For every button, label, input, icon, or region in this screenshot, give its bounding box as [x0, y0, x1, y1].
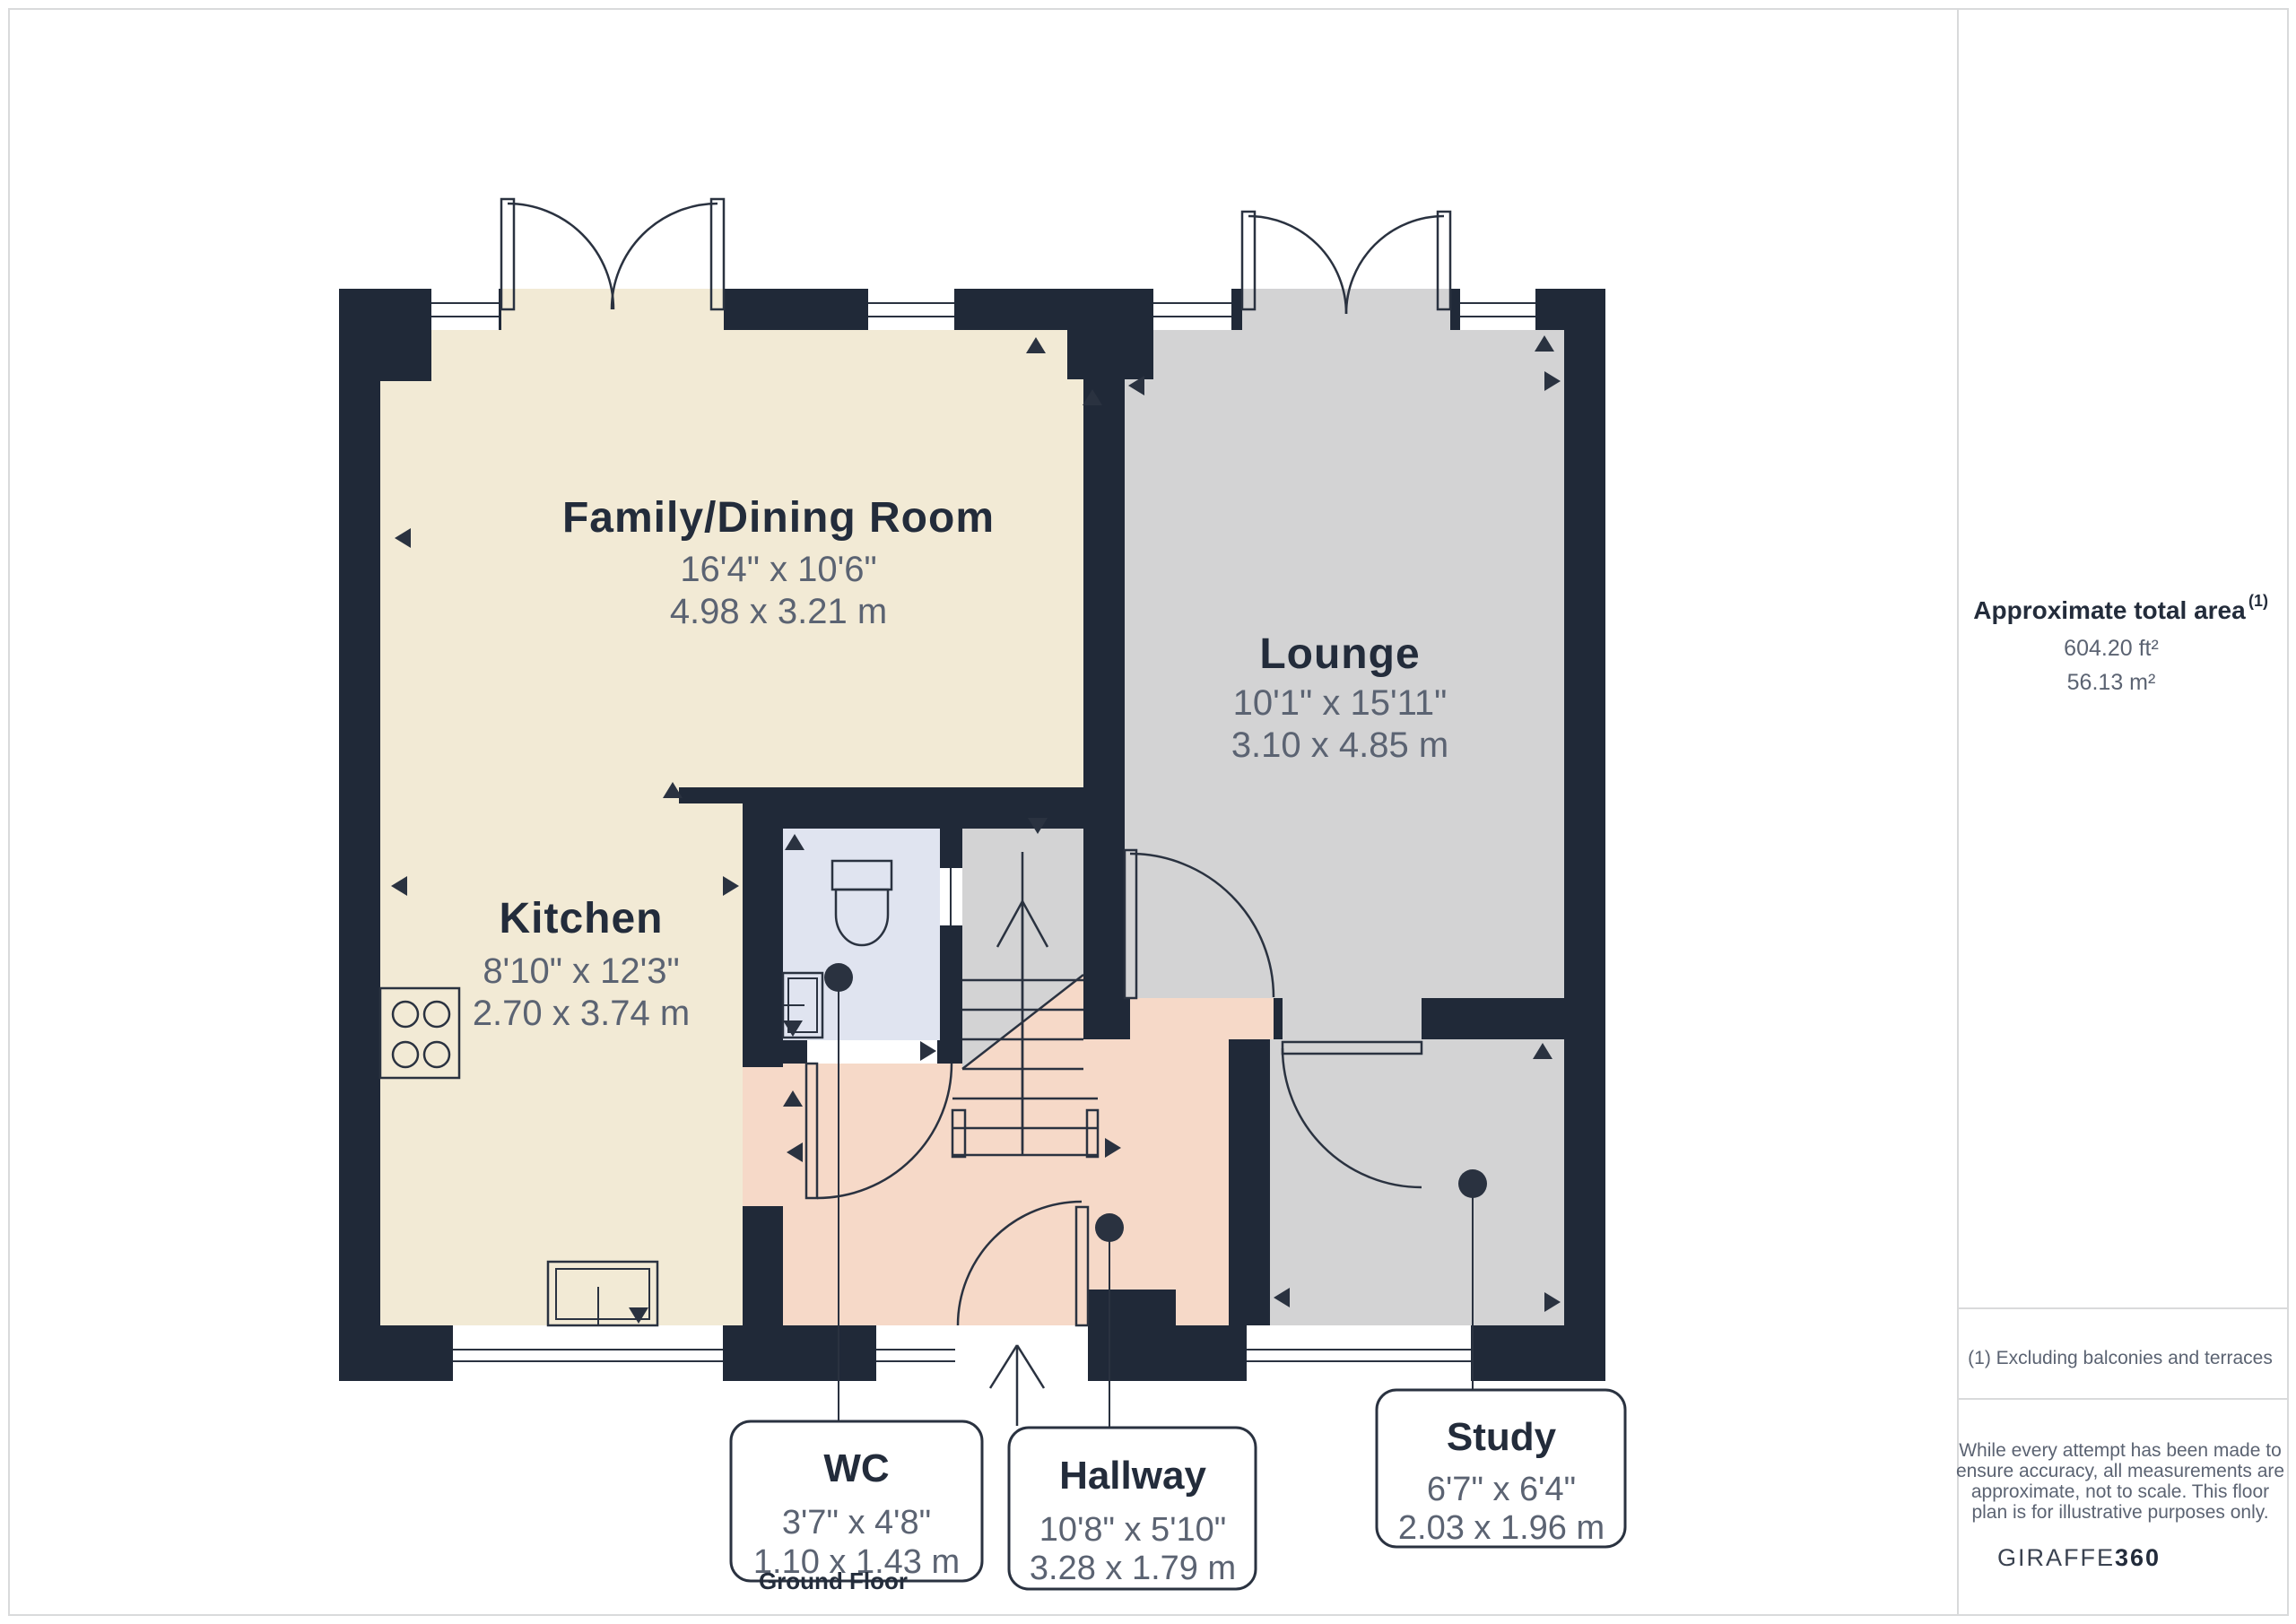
sidebar-area-footnote-marker: (1) — [2248, 592, 2268, 610]
window-kitchen — [453, 1325, 723, 1381]
hallway-imperial: 10'8" x 5'10" — [1039, 1511, 1226, 1549]
family-dining-title: Family/Dining Room — [562, 494, 995, 542]
disclaimer-line-1: While every attempt has been made to — [1959, 1440, 2282, 1461]
floorplan-page: Family/Dining Room 16'4" x 10'6" 4.98 x … — [0, 0, 2296, 1624]
study-imperial: 6'7" x 6'4" — [1427, 1471, 1576, 1508]
wall-kitchen-wc — [743, 803, 783, 1067]
callout-boxes: WC 3'7" x 4'8" 1.10 x 1.43 m Hallway 10'… — [731, 1390, 1625, 1589]
wall-wc-stairs — [940, 829, 962, 1064]
kitchen-metric: 2.70 x 3.74 m — [473, 994, 690, 1033]
floor-label: Ground Floor — [759, 1568, 908, 1594]
window-lounge-left — [1153, 289, 1231, 330]
sidebar-area-imperial: 604.20 ft² — [2064, 636, 2159, 661]
kitchen-imperial: 8'10" x 12'3" — [483, 951, 679, 991]
kitchen-title: Kitchen — [499, 895, 663, 942]
wc-callout-box: WC 3'7" x 4'8" 1.10 x 1.43 m — [731, 1421, 982, 1581]
study-callout-dot — [1458, 1169, 1487, 1198]
window-family-right — [868, 289, 954, 330]
window-family-left — [431, 289, 499, 330]
wc-title: WC — [823, 1446, 889, 1490]
lounge-metric: 3.10 x 4.85 m — [1231, 725, 1448, 765]
wall-entry-block — [1088, 1290, 1176, 1327]
disclaimer-line-3: approximate, not to scale. This floor — [1971, 1481, 2269, 1502]
door-wc-side-panel — [940, 868, 962, 925]
family-dining-metric: 4.98 x 3.21 m — [670, 592, 887, 631]
brand-regular: GIRAFFE — [1997, 1544, 2115, 1571]
brand-bold: 360 — [2115, 1544, 2161, 1571]
hallway-callout-dot — [1095, 1213, 1124, 1242]
window-study — [1247, 1325, 1471, 1381]
wall-family-kitchen-stub — [679, 787, 783, 803]
sidebar-footnote: (1) Excluding balconies and terraces — [1968, 1348, 2273, 1368]
wall-lounge-study — [1422, 998, 1564, 1039]
window-lounge-right — [1460, 289, 1535, 330]
disclaimer-line-4: plan is for illustrative purposes only. — [1971, 1502, 2268, 1523]
wall-hallway-study — [1229, 1039, 1270, 1325]
patio-doors-family — [501, 199, 724, 330]
lounge-imperial: 10'1" x 15'11" — [1233, 683, 1448, 723]
sidebar-disclaimer: While every attempt has been made to ens… — [1956, 1440, 2284, 1523]
disclaimer-line-2: ensure accuracy, all measurements are — [1956, 1461, 2284, 1481]
window-hallway — [876, 1325, 955, 1381]
door-kitchen-hallway — [743, 1067, 783, 1206]
floorplan-canvas: Family/Dining Room 16'4" x 10'6" 4.98 x … — [0, 0, 2296, 1624]
brand-logo: GIRAFFE 360 — [1997, 1544, 2161, 1571]
sidebar: Approximate total area (1) 604.20 ft² 56… — [1956, 592, 2288, 1571]
corner-block-topleft — [339, 289, 431, 381]
wall-family-lounge — [1083, 330, 1125, 998]
hallway-metric: 3.28 x 1.79 m — [1030, 1550, 1236, 1587]
wall-family-wc — [783, 787, 1125, 829]
wall-kitchen-hallway — [743, 1206, 783, 1325]
lounge-title: Lounge — [1259, 630, 1420, 678]
room-study — [1270, 1039, 1564, 1325]
wc-imperial: 3'7" x 4'8" — [782, 1504, 931, 1541]
family-dining-imperial: 16'4" x 10'6" — [680, 550, 876, 589]
hallway-title: Hallway — [1059, 1454, 1206, 1498]
hallway-callout-box: Hallway 10'8" x 5'10" 3.28 x 1.79 m — [1009, 1428, 1256, 1589]
wall-lounge-hall-a — [1083, 998, 1130, 1039]
patio-doors-lounge — [1242, 212, 1450, 330]
study-callout-box: Study 6'7" x 6'4" 2.03 x 1.96 m — [1377, 1390, 1625, 1547]
room-kitchen — [380, 787, 743, 1325]
wc-callout-dot — [824, 963, 853, 992]
study-metric: 2.03 x 1.96 m — [1398, 1509, 1605, 1547]
study-title: Study — [1447, 1415, 1557, 1459]
sidebar-area-metric: 56.13 m² — [2067, 670, 2156, 695]
sidebar-area-title: Approximate total area — [1973, 596, 2246, 624]
